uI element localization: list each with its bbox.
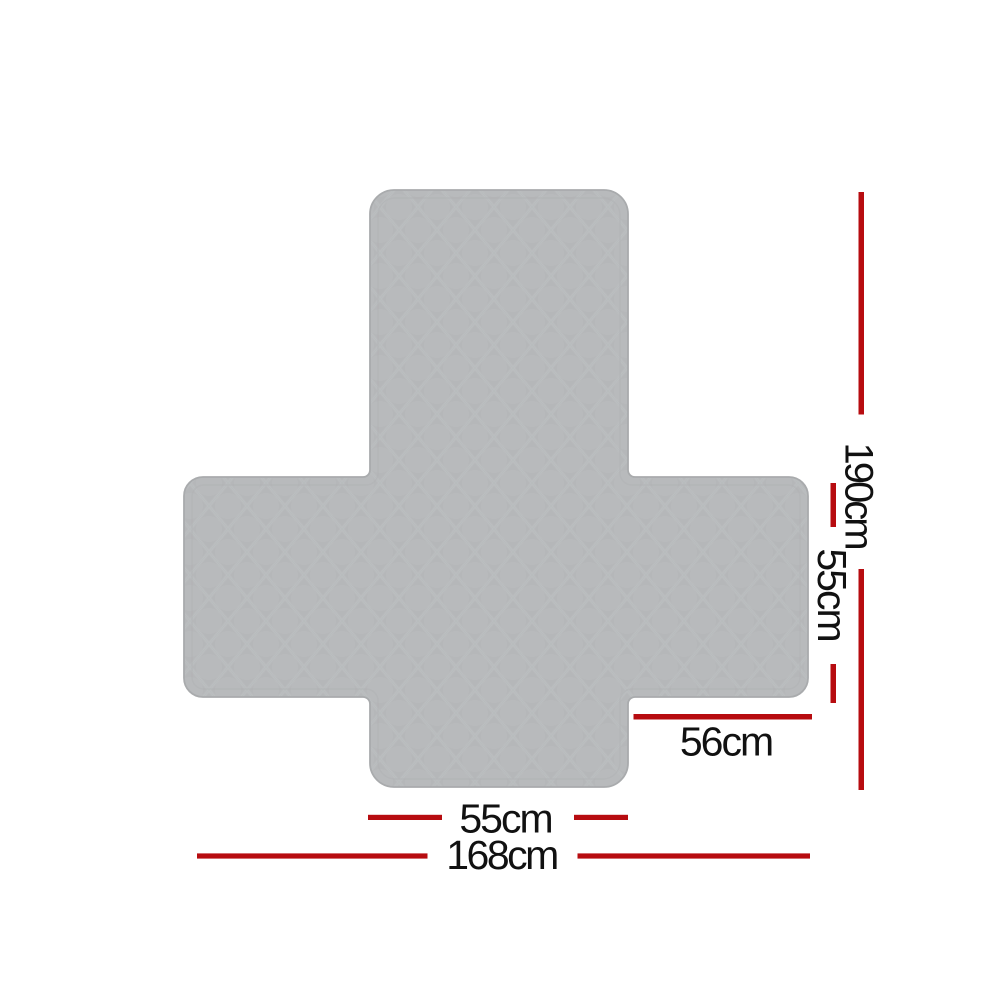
svg-text:55cm: 55cm <box>809 548 855 640</box>
svg-text:168cm: 168cm <box>446 832 557 878</box>
svg-text:56cm: 56cm <box>680 719 772 765</box>
svg-text:190cm: 190cm <box>837 442 881 548</box>
